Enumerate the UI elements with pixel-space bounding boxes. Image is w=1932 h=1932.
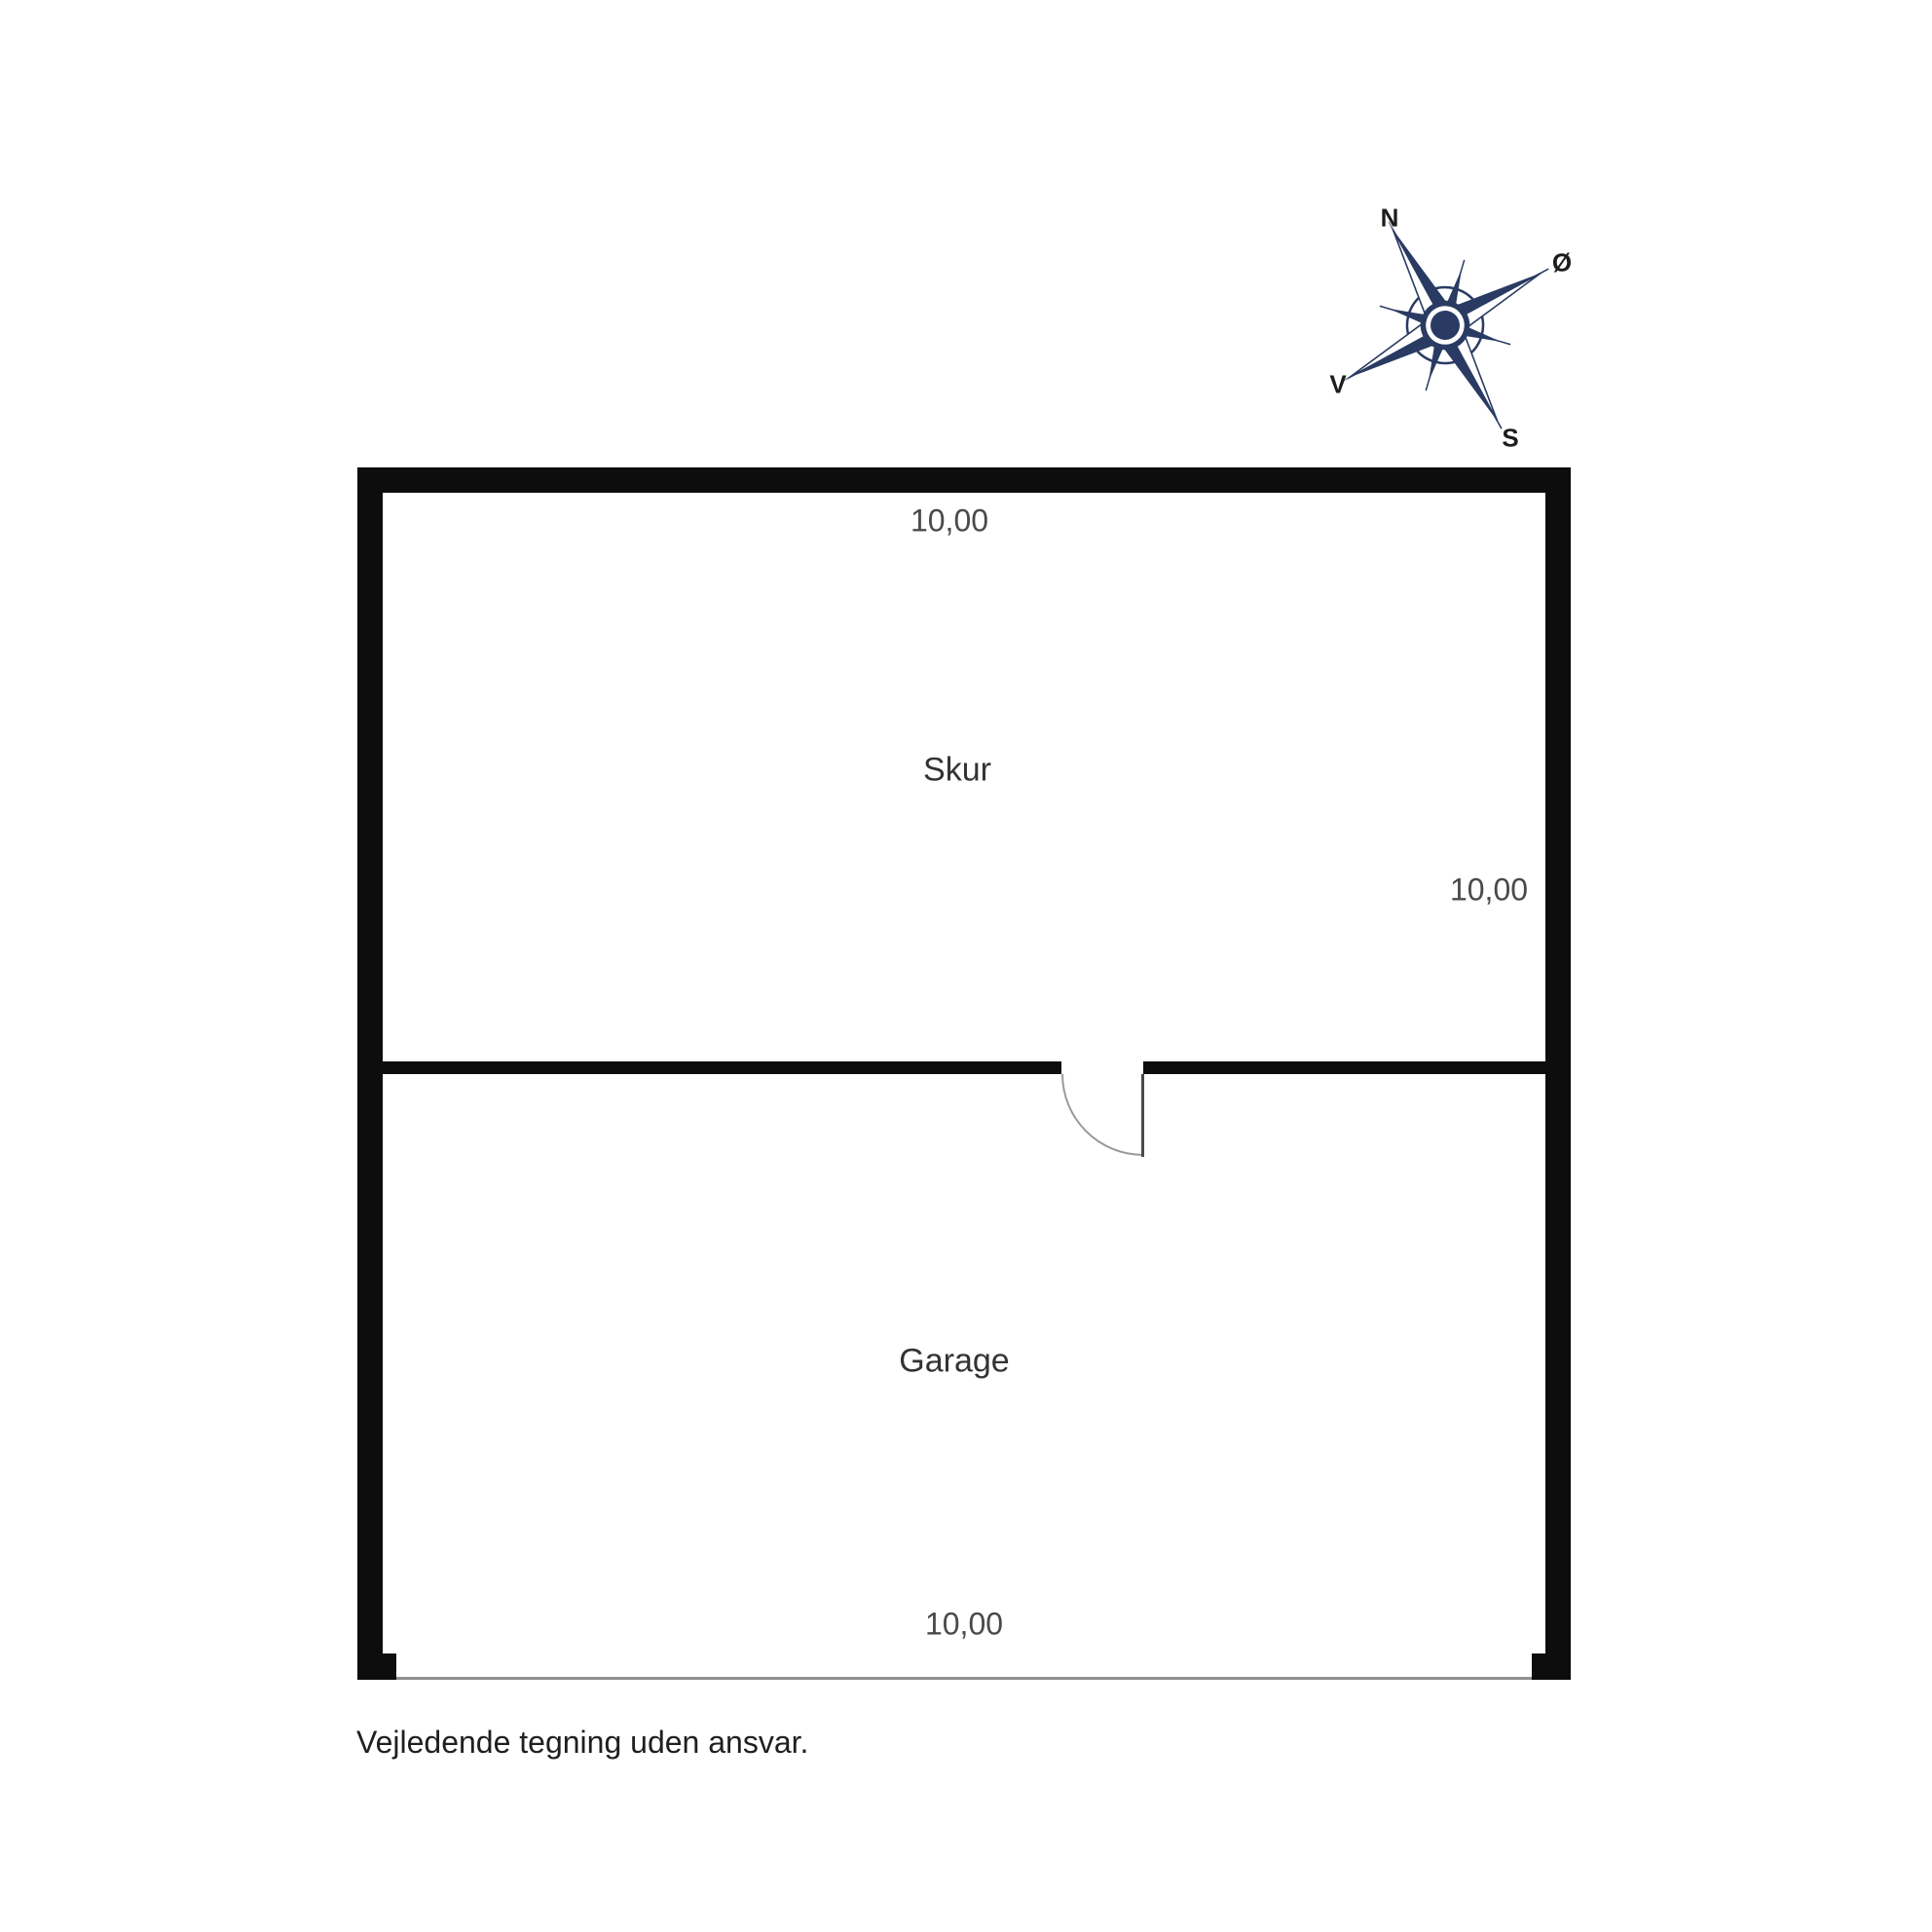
- compass-label-west: V: [1329, 370, 1346, 400]
- wall-stub-bottom-right: [1532, 1653, 1545, 1680]
- wall-stub-bottom-left: [383, 1653, 396, 1680]
- compass-rose-icon: [1299, 179, 1591, 471]
- room-label-garage: Garage: [899, 1343, 1009, 1381]
- floor-plan-page: N Ø V S 10,00 Skur 10,00 Garage 10,00 Ve…: [0, 0, 1932, 1932]
- wall-divider-left-segment: [383, 1061, 1061, 1074]
- compass-label-north: N: [1381, 204, 1399, 234]
- compass-label-east: Ø: [1552, 248, 1572, 279]
- wall-left: [357, 467, 383, 1680]
- wall-divider-right-segment: [1143, 1061, 1545, 1074]
- wall-right: [1545, 467, 1571, 1680]
- dimension-top: 10,00: [910, 503, 988, 539]
- room-label-skur: Skur: [923, 752, 991, 790]
- compass-label-south: S: [1502, 424, 1518, 454]
- dimension-bottom: 10,00: [925, 1607, 1003, 1643]
- disclaimer-text: Vejledende tegning uden ansvar.: [356, 1725, 808, 1761]
- garage-opening-line: [383, 1677, 1545, 1680]
- compass: [1299, 179, 1591, 471]
- door-swing-arc: [1061, 1074, 1143, 1156]
- door-leaf: [1141, 1074, 1144, 1157]
- wall-top: [357, 467, 1571, 493]
- dimension-right: 10,00: [1450, 873, 1528, 909]
